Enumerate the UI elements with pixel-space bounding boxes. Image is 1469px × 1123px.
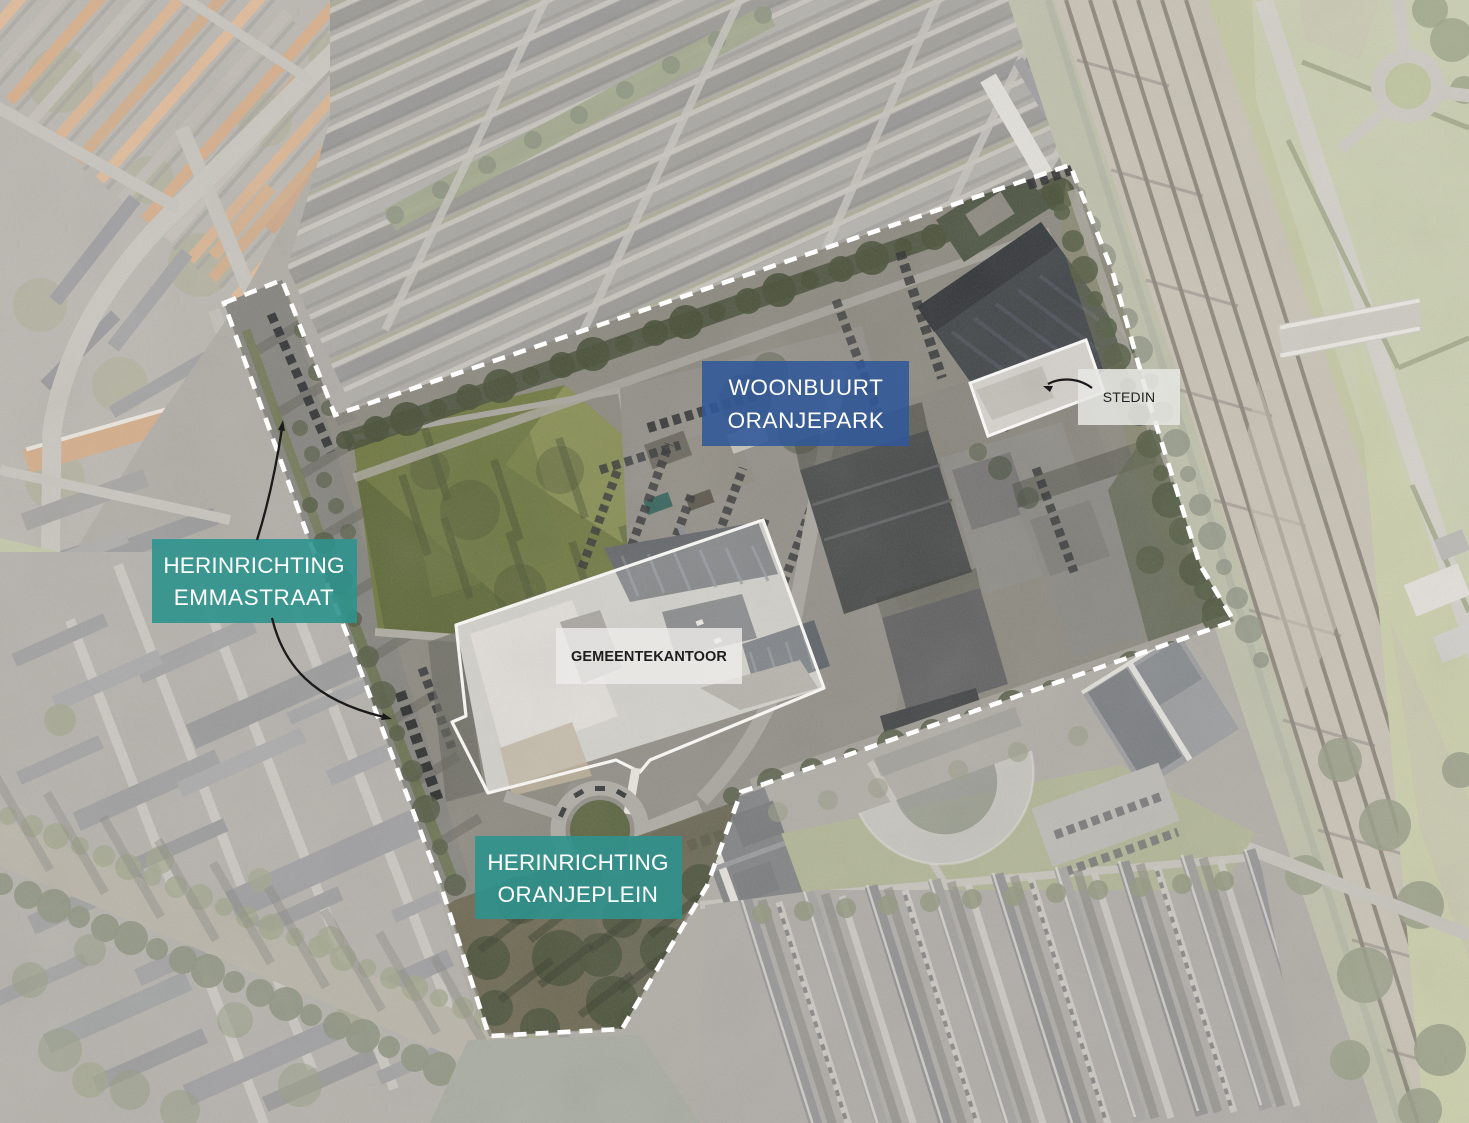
svg-text:HERINRICHTING: HERINRICHTING	[163, 553, 344, 578]
svg-text:WOONBUURT: WOONBUURT	[729, 375, 884, 400]
svg-text:HERINRICHTING: HERINRICHTING	[487, 850, 668, 875]
svg-text:ORANJEPARK: ORANJEPARK	[728, 408, 885, 433]
svg-text:GEMEENTEKANTOOR: GEMEENTEKANTOOR	[571, 649, 727, 665]
svg-text:EMMASTRAAT: EMMASTRAAT	[174, 585, 335, 610]
svg-text:STEDIN: STEDIN	[1103, 389, 1156, 405]
svg-text:ORANJEPLEIN: ORANJEPLEIN	[498, 882, 659, 907]
